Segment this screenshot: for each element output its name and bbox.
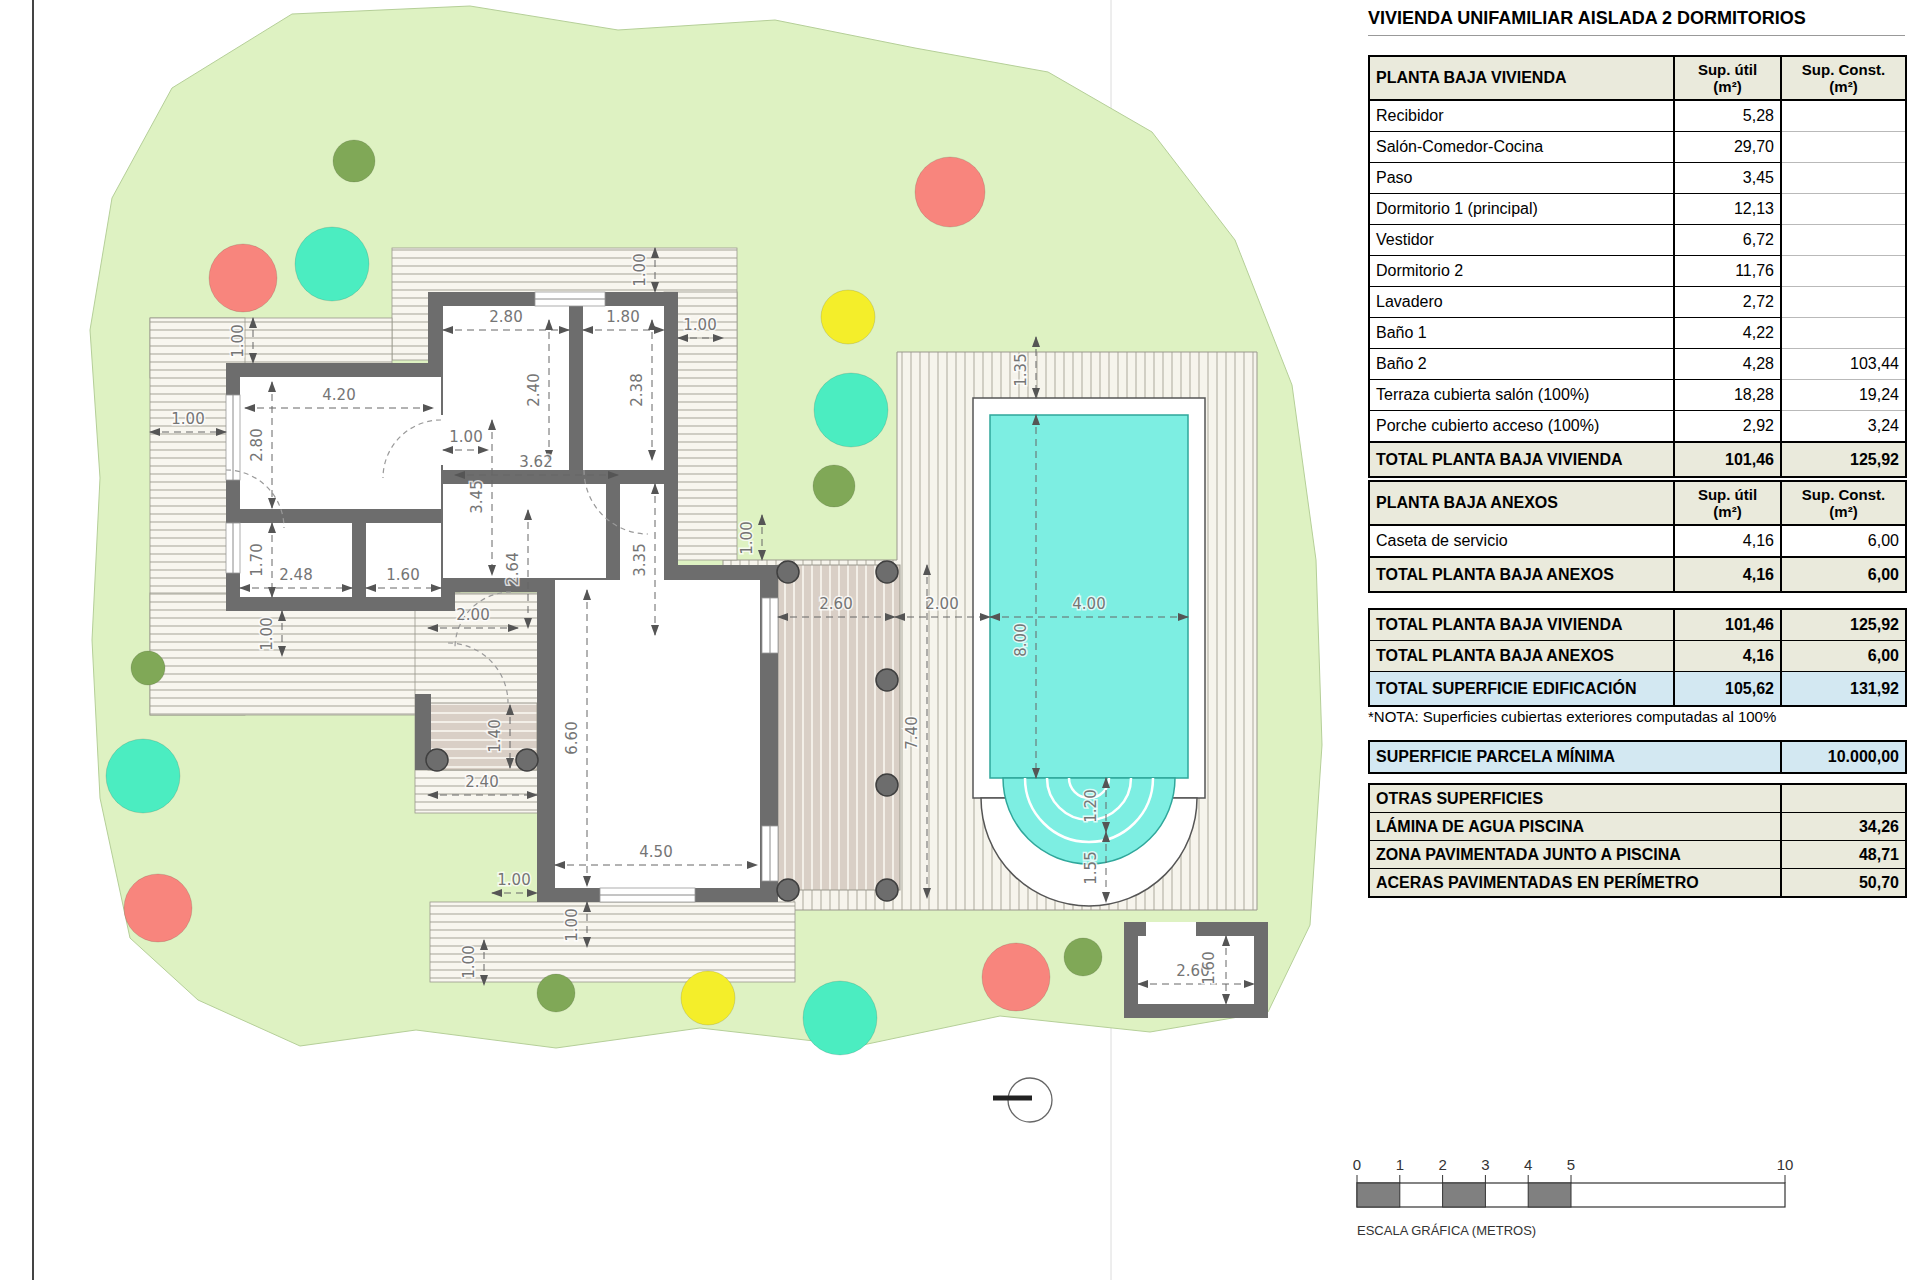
table-planta-baja-anexos: PLANTA BAJA ANEXOS Sup. útil (m²) Sup. C…: [1368, 480, 1907, 593]
tree: [106, 739, 180, 813]
table-row: ACERAS PAVIMENTADAS EN PERÍMETRO50,70: [1369, 869, 1906, 898]
table-row: TOTAL PLANTA BAJA ANEXOS4,166,00: [1369, 641, 1906, 672]
dimension-label: 1.00: [683, 316, 716, 334]
tree: [915, 157, 985, 227]
total-row: TOTAL PLANTA BAJA ANEXOS 4,16 6,00: [1369, 557, 1906, 592]
nota-text: *NOTA: Superficies cubiertas exteriores …: [1368, 708, 1905, 725]
dimension-label: 1.00: [497, 871, 530, 889]
dimension-label: 3.62: [519, 453, 552, 471]
dimension-label: 8.00: [1012, 623, 1030, 656]
dimension-label: 1.70: [248, 543, 266, 576]
dimension-label: 2.80: [248, 428, 266, 461]
dimension-label: 4.00: [1072, 595, 1105, 613]
table-row: Terraza cubierta salón (100%)18,2819,24: [1369, 380, 1906, 411]
dimension-label: 2.38: [628, 373, 646, 406]
dimension-label: 1.00: [258, 617, 276, 650]
dimension-label: 2.48: [279, 566, 312, 584]
tree: [333, 140, 375, 182]
dimension-label: 1.00: [460, 945, 478, 978]
dimension-label: 1.00: [449, 428, 482, 446]
dimension-label: 4.50: [639, 843, 672, 861]
tree: [813, 465, 855, 507]
table-row: Caseta de servicio4,166,00: [1369, 525, 1906, 557]
table-row: Baño 24,28103,44: [1369, 349, 1906, 380]
table-row: Porche cubierto acceso (100%)2,923,24: [1369, 411, 1906, 443]
dimension-label: 3.45: [468, 480, 486, 513]
table-row: Dormitorio 1 (principal)12,13: [1369, 194, 1906, 225]
access-symbol: [993, 1078, 1052, 1122]
table-header: PLANTA BAJA ANEXOS: [1369, 481, 1674, 525]
table-resumen-totales: TOTAL PLANTA BAJA VIVIENDA101,46125,92TO…: [1368, 608, 1907, 707]
tree: [1064, 938, 1102, 976]
surface-tables-panel: VIVIENDA UNIFAMILIAR AISLADA 2 DORMITORI…: [1368, 0, 1905, 1280]
dimension-label: 2.00: [925, 595, 958, 613]
tree: [131, 651, 165, 685]
dimension-label: 1.55: [1082, 851, 1100, 884]
dimension-label: 2.80: [489, 308, 522, 326]
dimension-label: 1.20: [1082, 789, 1100, 822]
table-otras-superficies: OTRAS SUPERFICIESLÁMINA DE AGUA PISCINA3…: [1368, 783, 1907, 898]
dimension-label: 4.20: [322, 386, 355, 404]
dimension-label: 1.00: [738, 521, 756, 554]
scale-tick-label: 0: [1353, 1156, 1361, 1173]
total-row: TOTAL PLANTA BAJA VIVIENDA 101,46 125,92: [1369, 442, 1906, 477]
tree: [982, 943, 1050, 1011]
dimension-label: 1.00: [171, 410, 204, 428]
dimension-label: 6.60: [563, 721, 581, 754]
dimension-label: 2.60: [819, 595, 852, 613]
table-row: LÁMINA DE AGUA PISCINA34,26: [1369, 813, 1906, 841]
dimension-label: 1.60: [1200, 951, 1218, 984]
tree: [537, 974, 575, 1012]
room-bano-1: [366, 523, 441, 597]
table-row: Salón-Comedor-Cocina29,70: [1369, 132, 1906, 163]
dimension-label: 2.64: [504, 552, 522, 585]
dimension-label: 1.60: [386, 566, 419, 584]
dimension-label: 1.00: [229, 324, 247, 357]
tree: [681, 971, 735, 1025]
dimension-label: 7.40: [903, 716, 921, 749]
table-row: Lavadero2,72: [1369, 287, 1906, 318]
tree: [209, 244, 277, 312]
table-row: Vestidor6,72: [1369, 225, 1906, 256]
covered-terrace: [778, 565, 900, 890]
dimension-label: 3.35: [631, 543, 649, 576]
dimension-label: 1.80: [606, 308, 639, 326]
col-sup-const: Sup. Const. (m²): [1781, 56, 1906, 100]
table-planta-baja-vivienda: PLANTA BAJA VIVIENDA Sup. útil (m²) Sup.…: [1368, 55, 1907, 478]
table-row: OTRAS SUPERFICIES: [1369, 784, 1906, 813]
table-header: PLANTA BAJA VIVIENDA: [1369, 56, 1674, 100]
tree: [124, 874, 192, 942]
col-sup-const: Sup. Const. (m²): [1781, 481, 1906, 525]
tree: [803, 981, 877, 1055]
table-superficie-parcela: SUPERFICIE PARCELA MÍNIMA 10.000,00: [1368, 740, 1907, 774]
dimension-label: 1.35: [1012, 353, 1030, 386]
table-row: SUPERFICIE PARCELA MÍNIMA 10.000,00: [1369, 741, 1906, 773]
table-row: TOTAL SUPERFICIE EDIFICACIÓN105,62131,92: [1369, 672, 1906, 707]
tree: [814, 373, 888, 447]
tree: [821, 290, 875, 344]
col-sup-util: Sup. útil (m²): [1674, 56, 1781, 100]
dimension-label: 1.40: [486, 719, 504, 752]
dimension-label: 1.00: [563, 908, 581, 941]
room-salon-comedor-cocina: [555, 580, 760, 888]
col-sup-util: Sup. útil (m²): [1674, 481, 1781, 525]
dimension-label: 2.00: [456, 606, 489, 624]
dimension-label: 1.00: [631, 253, 649, 286]
table-row: Dormitorio 211,76: [1369, 256, 1906, 287]
dimension-label: 2.40: [465, 773, 498, 791]
table-row: Recibidor5,28: [1369, 100, 1906, 132]
dimension-label: 2.40: [525, 373, 543, 406]
tree: [295, 227, 369, 301]
page-title: VIVIENDA UNIFAMILIAR AISLADA 2 DORMITORI…: [1368, 8, 1905, 36]
table-row: Paso3,45: [1369, 163, 1906, 194]
table-row: TOTAL PLANTA BAJA VIVIENDA101,46125,92: [1369, 609, 1906, 641]
table-row: ZONA PAVIMENTADA JUNTO A PISCINA48,71: [1369, 841, 1906, 869]
site-plan-sheet: 1.001.004.202.802.801.801.001.002.402.38…: [0, 0, 1920, 1280]
pool: [973, 398, 1205, 906]
table-row: Baño 14,22: [1369, 318, 1906, 349]
